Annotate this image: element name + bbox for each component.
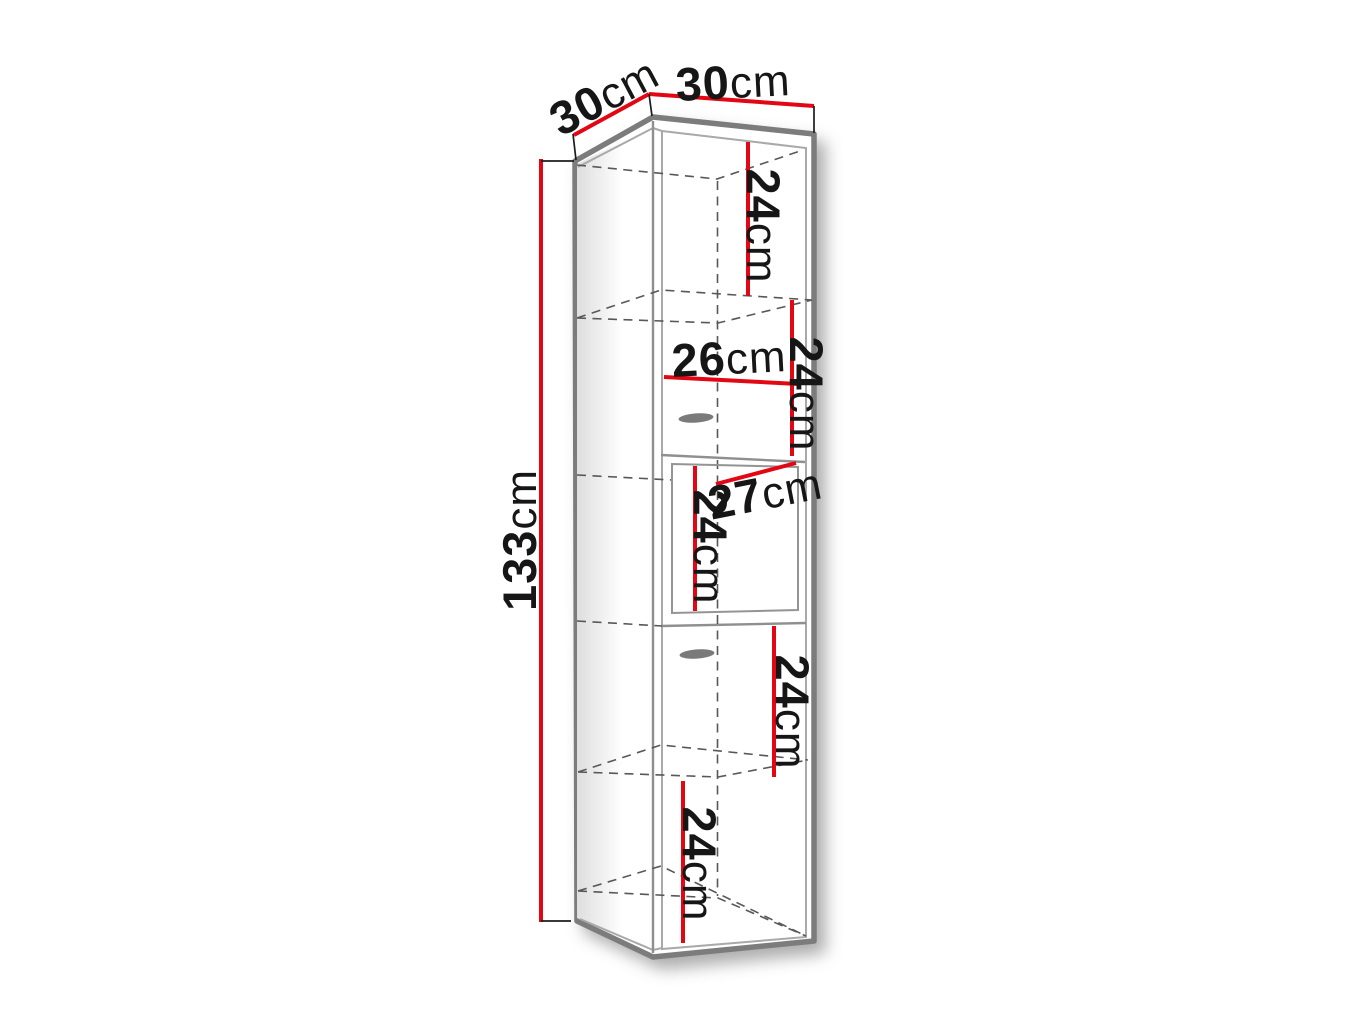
dim-label-section-bottom: 24cm: [673, 807, 726, 922]
dim-label-section-top: 24cm: [737, 169, 790, 284]
dim-label-inner-width: 26cm: [670, 328, 788, 387]
diagram-canvas: 30cm 30cm 133cm 24cm 24cm 26cm 27cm 24cm…: [0, 0, 1360, 1020]
cabinet-left-face: [577, 125, 653, 953]
dim-label-section-lower: 24cm: [766, 655, 819, 770]
dim-label-width-top: 30cm: [674, 52, 792, 111]
dim-label-door-height: 24cm: [684, 490, 737, 605]
dim-label-section-upper: 24cm: [780, 337, 833, 452]
dim-label-height-overall: 133cm: [493, 469, 546, 611]
cabinet-dimension-diagram: 30cm 30cm 133cm 24cm 24cm 26cm 27cm 24cm…: [0, 0, 1360, 1020]
